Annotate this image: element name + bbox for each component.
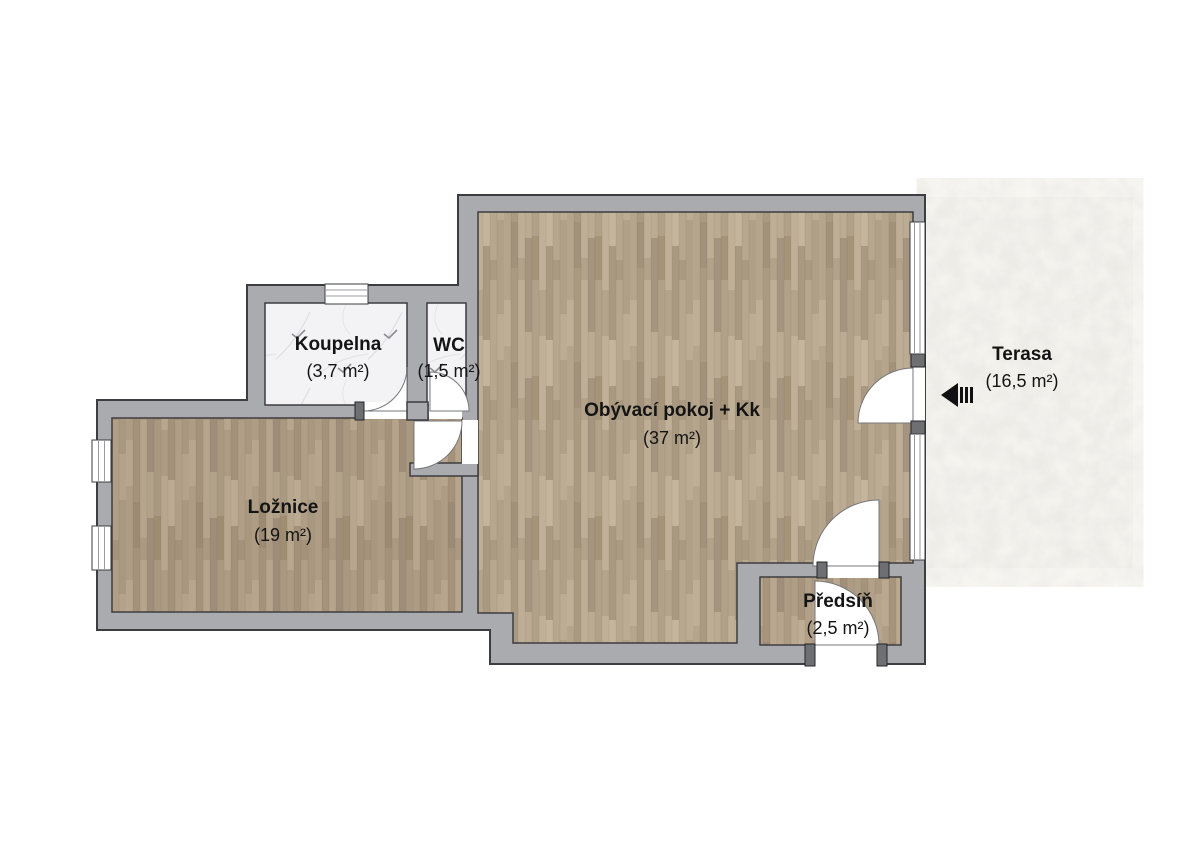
room-name: Předsíň (803, 591, 873, 612)
room-name: Ložnice (248, 497, 319, 518)
living-room-window-upper (910, 222, 925, 354)
entrance-doorway (815, 644, 877, 666)
entrance-door-jamb-right (877, 644, 887, 666)
bathroom-door-jamb (355, 402, 364, 420)
hallway-door-jamb-right (879, 562, 889, 578)
entrance-door-jamb-left (805, 644, 815, 666)
bathroom-window (325, 284, 368, 304)
room-area: (1,5 m²) (418, 361, 481, 381)
room-area: (19 m²) (254, 525, 312, 545)
living-room-window-lower (910, 434, 925, 560)
room-area: (16,5 m²) (985, 371, 1058, 391)
room-area: (3,7 m²) (307, 361, 370, 381)
bedroom-doorway (462, 420, 478, 464)
bedroom-window-lower (92, 526, 111, 570)
hallway-door-jamb-left (817, 562, 827, 578)
bedroom-window-upper (92, 440, 111, 482)
terrace-door-jamb-bottom (911, 421, 925, 434)
room-name: Terasa (992, 344, 1052, 365)
bath-wc-wall-post (407, 402, 428, 420)
floor-plan: Koupelna (3,7 m²) WC (1,5 m²) Obývací po… (0, 0, 1200, 848)
room-name: Obývací pokoj + Kk (584, 400, 760, 421)
room-name: WC (433, 335, 465, 356)
room-area: (37 m²) (643, 428, 701, 448)
terrace-door-jamb-top (911, 354, 925, 367)
room-area: (2,5 m²) (807, 618, 870, 638)
floor-plan-page: Koupelna (3,7 m²) WC (1,5 m²) Obývací po… (0, 0, 1200, 848)
room-name: Koupelna (295, 334, 382, 355)
